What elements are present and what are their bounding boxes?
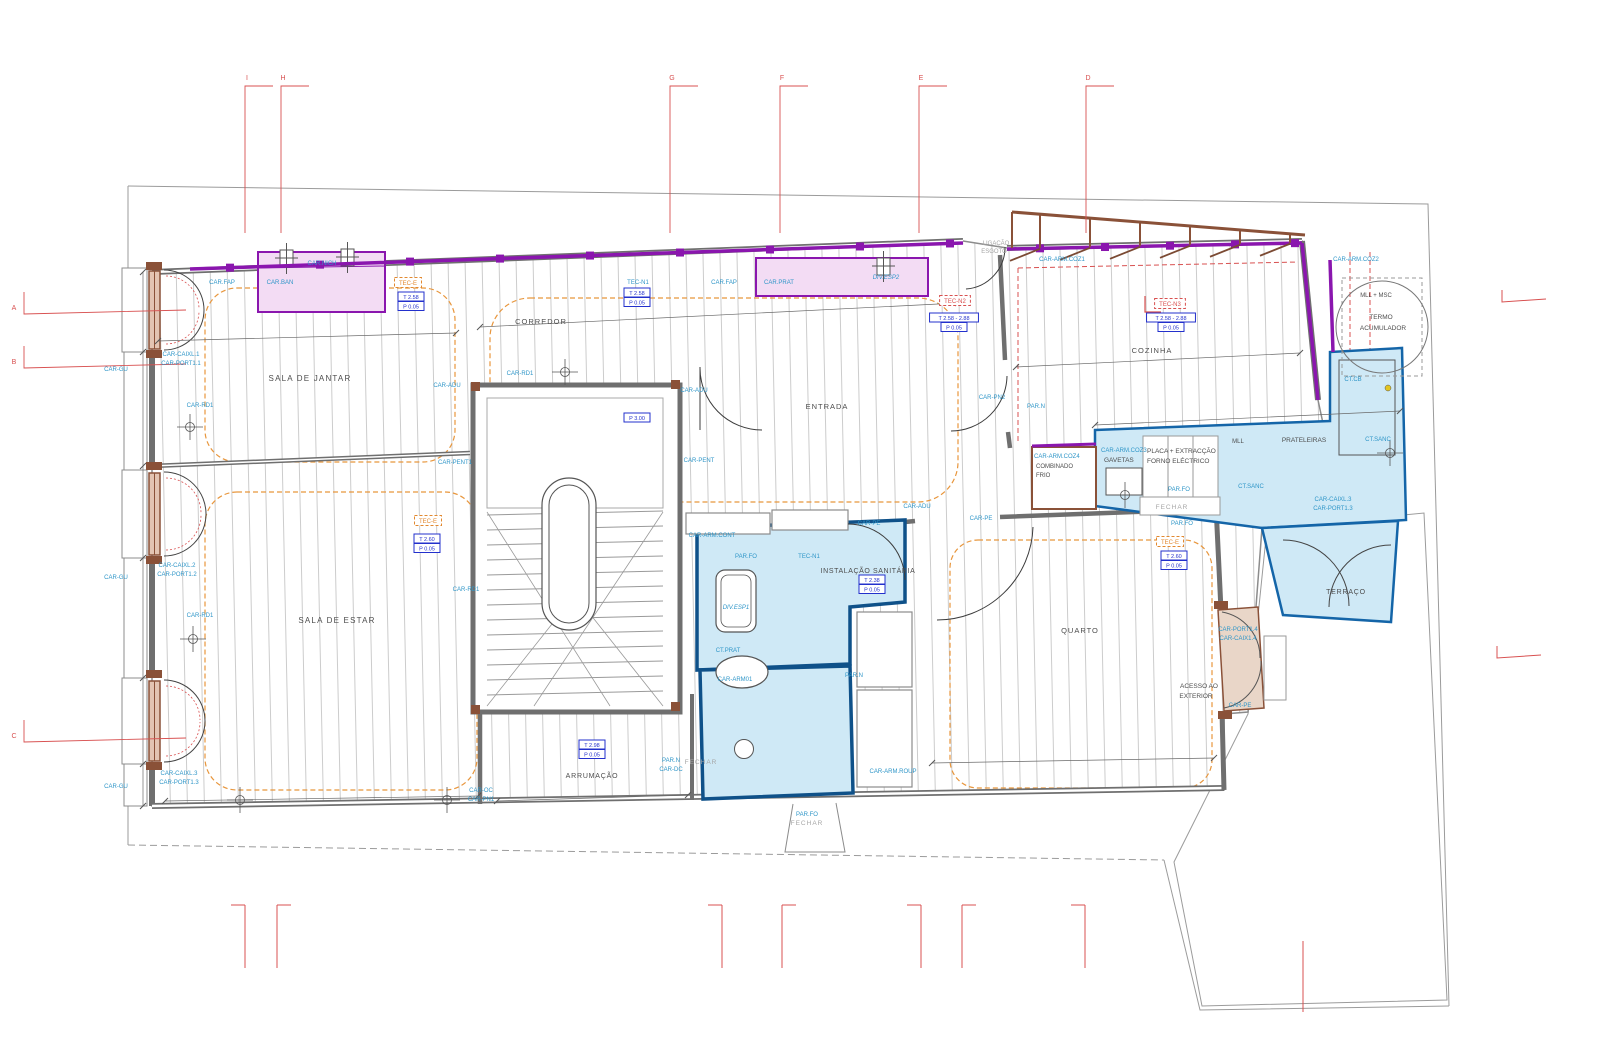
label-fechar-3: FECHAR [791,820,824,827]
floor-plan-canvas: IHGFEDABC SALA DE JANTARCORREDORENTRADAC… [0,0,1600,1063]
tec-n2-entrada: TEC-N2 [944,299,966,305]
label-combinado: COMBINADO [1036,464,1073,470]
label-par-fo-1: PAR.FO [735,554,757,560]
grid-letter-h: H [280,75,285,82]
tec-e-estar: TEC-E [419,519,437,525]
lvl-arrumacao-value-1: P 0.05 [584,753,600,759]
label-w1-port: CAR-PORT1.1 [161,361,201,367]
label-div-esp2: DIV.ESP2 [873,275,900,281]
label-mll-msc: MLL + MSC [1360,293,1392,299]
lvl-is-value-0: T 2.38 [864,578,880,584]
lvl-jantar-value-1: P 0.05 [403,305,419,311]
grid-letter-b: B [12,359,17,366]
label-placa-extraccao: PLACA + EXTRACÇÃO [1147,446,1216,455]
lvl-quarto-value-0: T 2.60 [1166,554,1182,560]
label-car-adu-3: CAR-ADU [903,504,930,510]
grid-letter-d: D [1085,75,1090,82]
tec-n1-corredor: TEC-N1 [627,280,649,286]
room-entrada: ENTRADA [806,402,849,411]
label-car-arm-coz4: CAR-ARM.COZ4 [1034,454,1080,460]
oven-hob-unit [1143,436,1218,506]
tec-e-quarto: TEC-E [1161,540,1179,546]
label-car-fap-2: CAR.FAP [711,280,737,286]
cabinet-cont-2 [772,510,848,530]
lvl-quarto-value-1: P 0.05 [1166,564,1182,570]
label-ad-caix: CAR-CAIX1.4 [1219,636,1257,642]
label-car-pe-2: CAR-PE [970,516,993,522]
label-prateleiras: PRATELEIRAS [1282,437,1327,444]
label-w2-port: CAR-PORT1.2 [157,572,197,578]
room-terraco: TERRAÇO [1326,589,1366,596]
label-forno-electrico: FORNO ELÉCTRICO [1147,456,1209,465]
label-car-ban: CAR.BAN [267,280,294,286]
lvl-arrumacao-value-0: T 2.98 [584,743,600,749]
label-esgoto: ESGOTO [981,249,1007,255]
label-car-gu-1: CAR-GU [104,367,128,373]
label-acesso-2: EXTERIOR [1179,693,1213,700]
label-car-arm01: CAR-ARM01 [718,677,753,683]
label-termo-2: ACUMULADOR [1360,325,1407,332]
label-par-n-3: PAR.N [662,758,680,764]
lvl-corredor-value-1: P 0.05 [629,301,645,307]
grid-letter-a: A [12,305,17,312]
label-par-fo-2: PAR.FO [1168,487,1190,493]
label-w3-port: CAR-PORT1.3 [159,780,199,786]
room-corredor: CORREDOR [515,317,567,326]
label-w1-caixl: CAR-CAIXL.1 [162,352,200,358]
label-car-pent2: CAR-PENT [684,458,715,464]
label-car-rd1-b: CAR-RD1 [507,371,534,377]
room-sala-de-estar: SALA DE ESTAR [298,616,375,625]
label-car-pn1: CAR-PN1 [468,797,495,803]
label-car-oc: CAR-OC [469,788,493,794]
label-par-n-1: PAR.N [1027,404,1045,410]
label-ct-prat: CT.PRAT [716,648,741,654]
label-par-fo-4: PAR.FO [796,812,818,818]
grid-letter-f: F [780,75,784,82]
room-sala-de-jantar: SALA DE JANTAR [269,374,352,383]
label-car-arm-coz3: CAR-ARM.COZ3 [1101,448,1147,454]
lvl-escada-value-0: P 3.00 [629,416,645,422]
label-frio: FRIO [1036,473,1051,479]
label-termo-1: TERMO [1369,314,1392,321]
grid-letter-e: E [919,75,924,82]
label-car-rd1-c: CAR-RD1 [187,613,214,619]
label-car-adu-1: CAR-ADU [433,383,460,389]
label-ct-sanc-1: CT.SANC [1365,437,1391,443]
label-w3-caixl: CAR-CAIXL.3 [160,771,198,777]
label-kd-port: CAR-PORT1.3 [1313,506,1353,512]
tec-e-jantar: TEC-E [399,281,417,287]
wc [735,740,754,759]
lvl-entrada-value-1: P 0.05 [946,326,962,332]
label-car-prat: CAR.PRAT [764,280,794,286]
label-car-pent1: CAR-PENT1 [438,460,473,466]
lvl-corredor-value-0: T 2.58 [629,291,645,297]
label-car-gu-3: CAR-GU [104,784,128,790]
room-quarto: QUARTO [1061,626,1099,635]
grid-letter-i: I [246,75,248,82]
label-car-rd1-d: CAR-RD1 [453,587,480,593]
exterior-step [1264,636,1286,700]
label-car-fap-1: CAR.FAP [209,280,235,286]
tec-n3-cozinha: TEC-N3 [1159,302,1181,308]
washbasin [716,656,768,688]
label-fechar-1: FECHAR [1156,504,1189,511]
cabinet-cont-1 [686,513,770,534]
lvl-cozinha-value-1: P 0.05 [1163,326,1179,332]
label-w2-caixl: CAR-CAIXL.2 [158,563,196,569]
lvl-entrada-value-0: T 2.58 - 2.88 [938,316,969,322]
label-car-arm-roup: CAR-ARM.ROUP [869,769,916,775]
label-gavetas: GAVETAS [1104,457,1134,464]
lvl-cozinha-value-0: T 2.58 - 2.88 [1155,316,1186,322]
bathtub [716,570,756,632]
label-car-pe-1: CAR-PE [858,521,881,527]
label-car-arm-cont: CAR-ARM.CONT [689,533,736,539]
wardrobe-roup-1 [857,612,912,687]
label-ad-port: CAR-PORT1.4 [1218,627,1258,633]
lvl-jantar-value-0: T 2.58 [403,295,419,301]
label-ct-cb: CT.CB [1344,377,1361,383]
label-car-dc: CAR-DC [659,767,683,773]
label-kd-caixl: CAR-CAIXL.3 [1314,497,1352,503]
label-div-esp1: DIV.ESP1 [723,605,750,611]
car-prat-box [756,258,928,296]
label-car-pe-3: CAR-PE [1229,703,1252,709]
room-cozinha: COZINHA [1132,346,1173,355]
valve-dot [1385,385,1391,391]
tec-n1-is: TEC-N1 [798,554,820,560]
lvl-is-value-1: P 0.05 [864,588,880,594]
lvl-estar-value-1: P 0.05 [419,547,435,553]
label-ct-sanc-2: CT.SANC [1238,484,1264,490]
grid-letter-g: G [669,75,674,82]
par-fo-chute [785,803,845,852]
label-ligacao: LIGAÇÃO [983,240,1010,247]
label-acesso-1: ACESSO AO [1180,683,1218,690]
grid-letter-c: C [11,733,16,740]
label-car-rd1-a: CAR-RD1 [187,403,214,409]
room-arrumacao: ARRUMAÇÃO [566,771,619,780]
label-mll: MLL [1232,439,1244,445]
label-car-arm-coz1: CAR-ARM.COZ1 [1039,257,1085,263]
stairwell [471,380,680,714]
label-car-arm-coz2: CAR-ARM.COZ2 [1333,257,1379,263]
label-car-pn2: CAR-PN2 [979,395,1006,401]
floor-plan-sheet: IHGFEDABC SALA DE JANTARCORREDORENTRADAC… [0,0,1600,1063]
label-car-adu-2: CAR-ADU [680,388,707,394]
label-car-gu-2: CAR-GU [104,575,128,581]
room-instalacao-sanitaria: INSTALAÇÃO SANITÁRIA [821,566,916,575]
lvl-estar-value-0: T 2.60 [419,537,435,543]
label-fechar-2: FECHAR [685,759,718,766]
label-car-nich: CAR.NICH [307,261,336,267]
label-par-n-2: PAR.N [845,673,863,679]
label-par-fo-3: PAR.FO [1171,521,1193,527]
